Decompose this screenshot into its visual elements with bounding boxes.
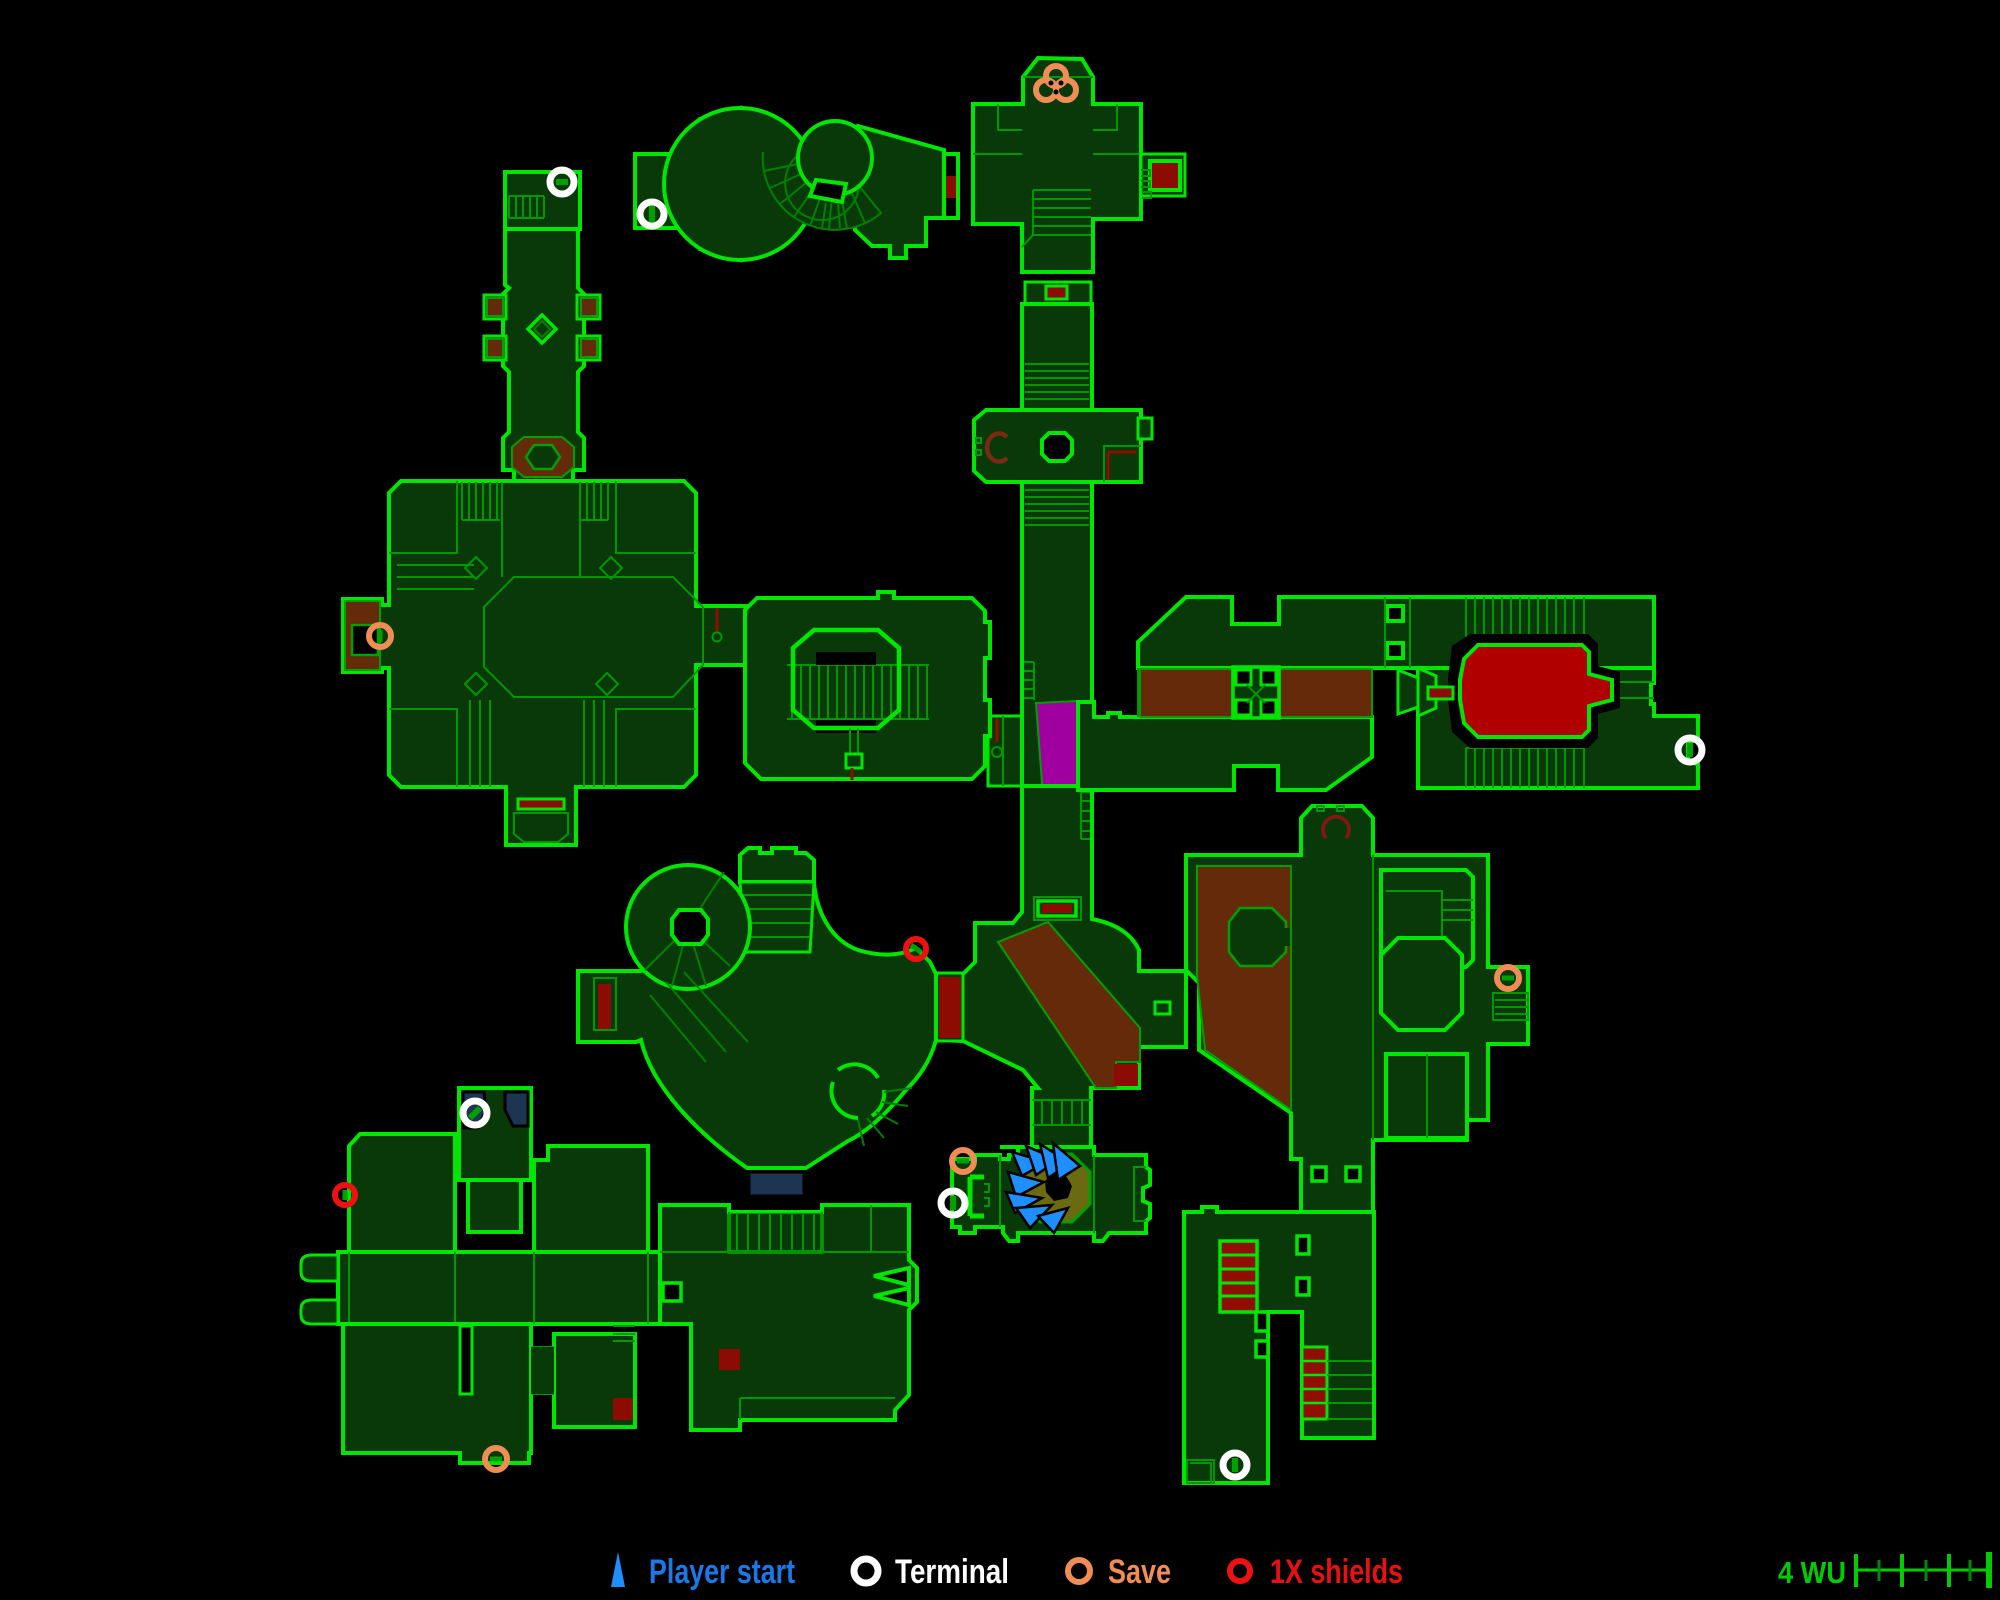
svg-text:Player start: Player start [649,1553,795,1591]
svg-text:Terminal: Terminal [895,1553,1009,1591]
svg-text:4 WU: 4 WU [1778,1555,1846,1590]
svg-text:Save: Save [1108,1553,1171,1591]
svg-text:1X shields: 1X shields [1270,1553,1403,1591]
